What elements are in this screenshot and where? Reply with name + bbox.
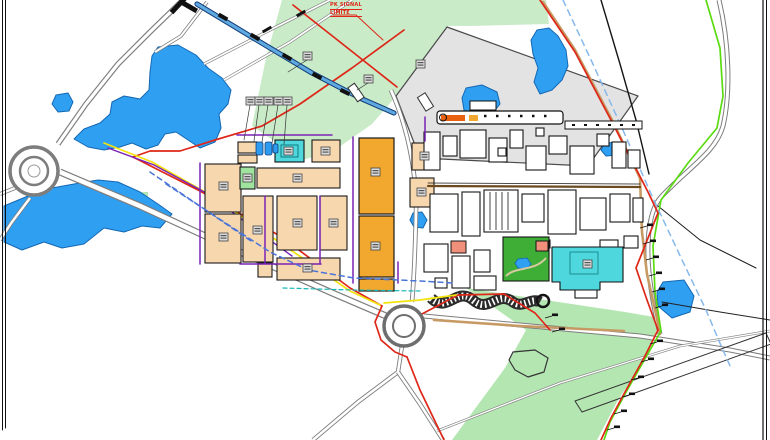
parcel-label-chip: [416, 60, 425, 68]
label-chip-glyph: [305, 54, 311, 55]
label-chip-glyph: [419, 193, 425, 194]
label-chip-glyph: [257, 102, 263, 103]
label-chip-glyph: [585, 262, 591, 263]
label-chip-glyph: [418, 65, 424, 66]
salmon-building: [536, 241, 548, 251]
plant-building: [474, 276, 496, 290]
label-chip-glyph: [285, 102, 291, 103]
plant-building: [610, 194, 630, 222]
plant-building: [522, 194, 544, 222]
label-chip-glyph: [255, 231, 261, 232]
label-chip-glyph: [221, 184, 227, 185]
building-label-chip: [293, 219, 302, 227]
cyan-building-label-chip: [583, 260, 592, 268]
label-chip-glyph: [305, 269, 311, 270]
pipe-rack-brown: [428, 186, 640, 187]
label-chip-glyph: [585, 265, 591, 266]
label-chip-glyph: [305, 266, 311, 267]
plant-building: [570, 146, 594, 174]
label-chip-glyph: [286, 149, 292, 150]
label-chip-glyph: [419, 190, 425, 191]
label-chip-glyph: [373, 173, 379, 174]
road-prong-se: [398, 372, 443, 440]
road-ramp: [155, 2, 207, 52]
label-chip-glyph: [305, 57, 311, 58]
plant-building: [548, 190, 576, 234]
label-chip-glyph: [248, 102, 254, 103]
building-label-chip: [417, 188, 426, 196]
road-east-curve: [648, 0, 728, 334]
site-plan-canvas: [0, 0, 770, 440]
road-east-curve: [648, 0, 728, 334]
road-prong-sw: [313, 346, 402, 440]
plant-building: [624, 236, 638, 248]
label-chip-glyph: [295, 224, 301, 225]
building-label-chip: [420, 152, 429, 160]
boundary-callout: PK SIGNAL LIMITE: [330, 2, 362, 17]
pond-plant: [410, 212, 427, 228]
roundabout-south-inner: [393, 315, 415, 337]
building-label-chip: [264, 97, 273, 105]
boundary-callout-line2: LIMITE: [330, 10, 362, 18]
label-chip-glyph: [366, 77, 372, 78]
label-chip-glyph: [276, 99, 282, 100]
building-label-chip: [293, 174, 302, 182]
label-chip-glyph: [266, 99, 272, 100]
plant-building: [580, 198, 606, 230]
building-label-chip: [246, 97, 255, 105]
label-chip-glyph: [266, 102, 272, 103]
red-boundary: [407, 357, 444, 440]
label-chip-glyph: [331, 224, 337, 225]
plant-building: [526, 146, 546, 170]
canal-label-chip: [303, 52, 312, 60]
building-label-chip: [303, 264, 312, 272]
plant-building: [498, 148, 506, 156]
boundary-tick-label: [559, 328, 565, 331]
plant-building: [536, 128, 544, 136]
building-label-chip: [284, 147, 293, 155]
label-chip-glyph: [245, 179, 251, 180]
boundary-callout-line1: PK SIGNAL: [330, 2, 362, 10]
label-chip-glyph: [422, 154, 428, 155]
green-corridor-south: [452, 288, 660, 440]
building-label-chip: [255, 97, 264, 105]
label-chip-glyph: [331, 221, 337, 222]
label-chip-glyph: [295, 221, 301, 222]
boundary-tick-label: [650, 240, 656, 243]
building-label-chip: [219, 233, 228, 241]
roundabout-west-inner: [28, 165, 40, 177]
boundary-tick-label: [662, 304, 668, 307]
plant-building: [612, 142, 626, 168]
label-chip-glyph: [418, 62, 424, 63]
building-label-chip: [283, 97, 292, 105]
plant-building: [424, 244, 448, 272]
plant-building: [430, 194, 458, 232]
label-chip-glyph: [295, 176, 301, 177]
storage-tank: [265, 142, 272, 155]
road-label-bar: [180, 0, 198, 13]
label-chip-glyph: [276, 102, 282, 103]
label-chip-glyph: [221, 187, 227, 188]
building-label-chip: [219, 182, 228, 190]
label-chip-glyph: [245, 176, 251, 177]
plant-building: [452, 256, 470, 288]
label-chip-glyph: [366, 80, 372, 81]
boundary-tick-label: [657, 340, 663, 343]
storage-tank: [256, 142, 263, 155]
building-label-chip: [243, 174, 252, 182]
plant-building: [549, 136, 567, 154]
label-chip-glyph: [422, 157, 428, 158]
boundary-tick-label: [629, 393, 635, 396]
boundary-tick-label: [648, 358, 654, 361]
label-chip-glyph: [295, 179, 301, 180]
label-chip-glyph: [255, 228, 261, 229]
cyan-building-large: [552, 247, 623, 290]
plant-building: [424, 132, 440, 170]
conveyor-amber-segment: [469, 115, 478, 121]
pipe-rack-black: [428, 183, 640, 184]
label-chip-glyph: [257, 99, 263, 100]
plant-building: [460, 130, 486, 158]
planned-building: [238, 155, 257, 163]
plant-building: [597, 134, 609, 146]
label-chip-glyph: [373, 244, 379, 245]
boundary-tick-label: [552, 314, 558, 317]
label-chip-glyph: [323, 149, 329, 150]
storage-tank: [273, 144, 278, 153]
planned-building: [258, 263, 272, 277]
boundary-tick-label: [638, 376, 644, 379]
label-chip-glyph: [221, 238, 227, 239]
building-label-chip: [253, 226, 262, 234]
label-chip-glyph: [373, 247, 379, 248]
plant-building: [470, 101, 496, 110]
label-chip-glyph: [248, 99, 254, 100]
label-chip-glyph: [323, 152, 329, 153]
pond-southeast: [657, 280, 694, 318]
boundary-tick-label: [656, 272, 662, 275]
north-strip: [565, 121, 642, 129]
plant-building: [484, 190, 518, 232]
building-label-chip: [321, 147, 330, 155]
building-label-chip: [274, 97, 283, 105]
planned-building: [238, 142, 257, 153]
boundary-tick-label: [653, 256, 659, 259]
fence-line: [658, 206, 756, 268]
pond-small-west: [52, 93, 73, 112]
plant-building: [628, 150, 640, 168]
site-master-plan: PK SIGNAL LIMITE: [0, 0, 770, 440]
plant-building: [462, 192, 480, 236]
salmon-building: [451, 241, 466, 253]
building-label-chip: [329, 219, 338, 227]
plant-building: [510, 130, 523, 148]
building-label-chip: [364, 75, 373, 83]
boundary-tick-label: [647, 224, 653, 227]
boundary-tick-label: [614, 426, 620, 429]
label-chip-glyph: [373, 170, 379, 171]
plant-building: [633, 198, 643, 222]
boundary-tick-label: [659, 288, 665, 291]
plant-building: [474, 250, 490, 272]
label-chip-glyph: [221, 235, 227, 236]
label-chip-glyph: [285, 99, 291, 100]
orange-building: [359, 279, 394, 291]
boundary-tick-label: [621, 410, 627, 413]
building-label-chip: [371, 242, 380, 250]
plant-building: [443, 136, 457, 156]
building-label-chip: [371, 168, 380, 176]
label-chip-glyph: [286, 152, 292, 153]
